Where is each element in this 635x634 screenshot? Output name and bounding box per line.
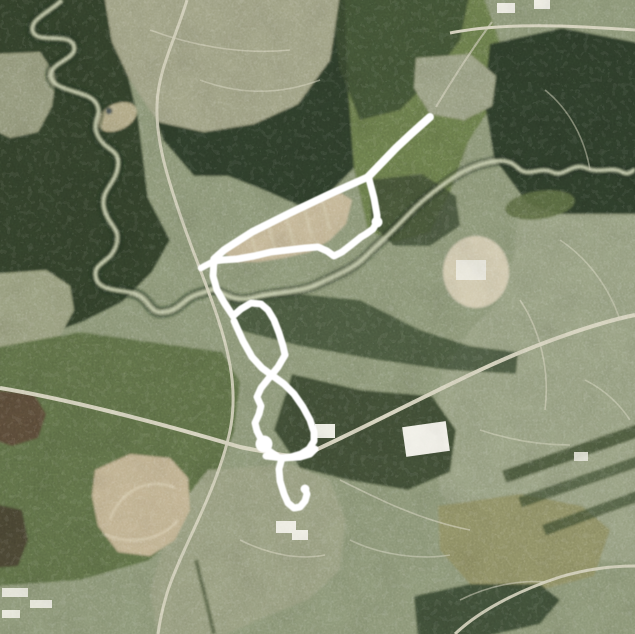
route-node-end [301,485,310,494]
satellite-map-image[interactable] [0,0,635,634]
photo-grain-texture [0,0,635,634]
satellite-map-view[interactable] [0,0,635,634]
